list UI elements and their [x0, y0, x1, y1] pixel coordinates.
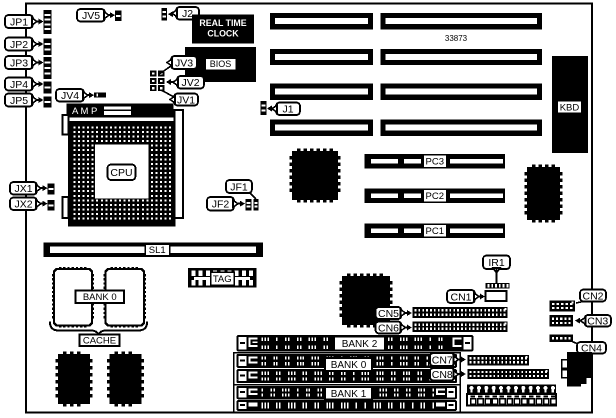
svg-text:J1: J1 [282, 104, 293, 116]
svg-text:PC1: PC1 [426, 226, 444, 237]
svg-text:BANK 0: BANK 0 [83, 292, 117, 303]
svg-text:PC3: PC3 [426, 156, 444, 167]
svg-text:BANK 2: BANK 2 [342, 339, 378, 350]
svg-text:BANK 0: BANK 0 [331, 360, 367, 371]
svg-text:CN1: CN1 [450, 291, 471, 303]
svg-text:JP2: JP2 [10, 39, 28, 51]
svg-text:JF1: JF1 [230, 181, 248, 193]
svg-text:TAG: TAG [213, 274, 232, 285]
svg-text:CN6: CN6 [378, 322, 399, 334]
svg-text:J2: J2 [182, 8, 193, 20]
svg-text:JF2: JF2 [212, 199, 230, 211]
svg-text:JP1: JP1 [10, 16, 28, 28]
svg-text:IR1: IR1 [488, 257, 505, 269]
svg-text:JP5: JP5 [10, 95, 28, 107]
svg-text:BANK 1: BANK 1 [331, 389, 367, 400]
svg-text:JP3: JP3 [10, 57, 28, 69]
svg-text:CN2: CN2 [582, 290, 603, 302]
svg-text:JV5: JV5 [82, 10, 100, 22]
svg-text:KBD: KBD [560, 102, 580, 113]
svg-text:JV4: JV4 [61, 90, 79, 102]
svg-text:JX2: JX2 [14, 199, 32, 211]
svg-text:CLOCK: CLOCK [207, 29, 239, 39]
svg-text:CN5: CN5 [378, 308, 399, 320]
svg-text:CACHE: CACHE [83, 336, 116, 347]
svg-text:JP4: JP4 [10, 79, 28, 91]
svg-text:REAL TIME: REAL TIME [199, 18, 246, 28]
svg-text:JV3: JV3 [175, 57, 193, 69]
svg-text:CN3: CN3 [587, 316, 608, 328]
svg-text:CN8: CN8 [432, 369, 453, 381]
svg-text:33873: 33873 [445, 34, 468, 43]
svg-text:BIOS: BIOS [210, 59, 232, 69]
svg-text:PC2: PC2 [426, 191, 444, 202]
svg-text:JV1: JV1 [177, 94, 195, 106]
svg-text:CPU: CPU [110, 167, 132, 179]
svg-text:JV2: JV2 [181, 77, 199, 89]
svg-text:A M P: A M P [72, 106, 97, 117]
svg-text:JX1: JX1 [14, 183, 32, 195]
svg-text:CN7: CN7 [432, 354, 453, 366]
svg-text:SL1: SL1 [149, 245, 166, 256]
